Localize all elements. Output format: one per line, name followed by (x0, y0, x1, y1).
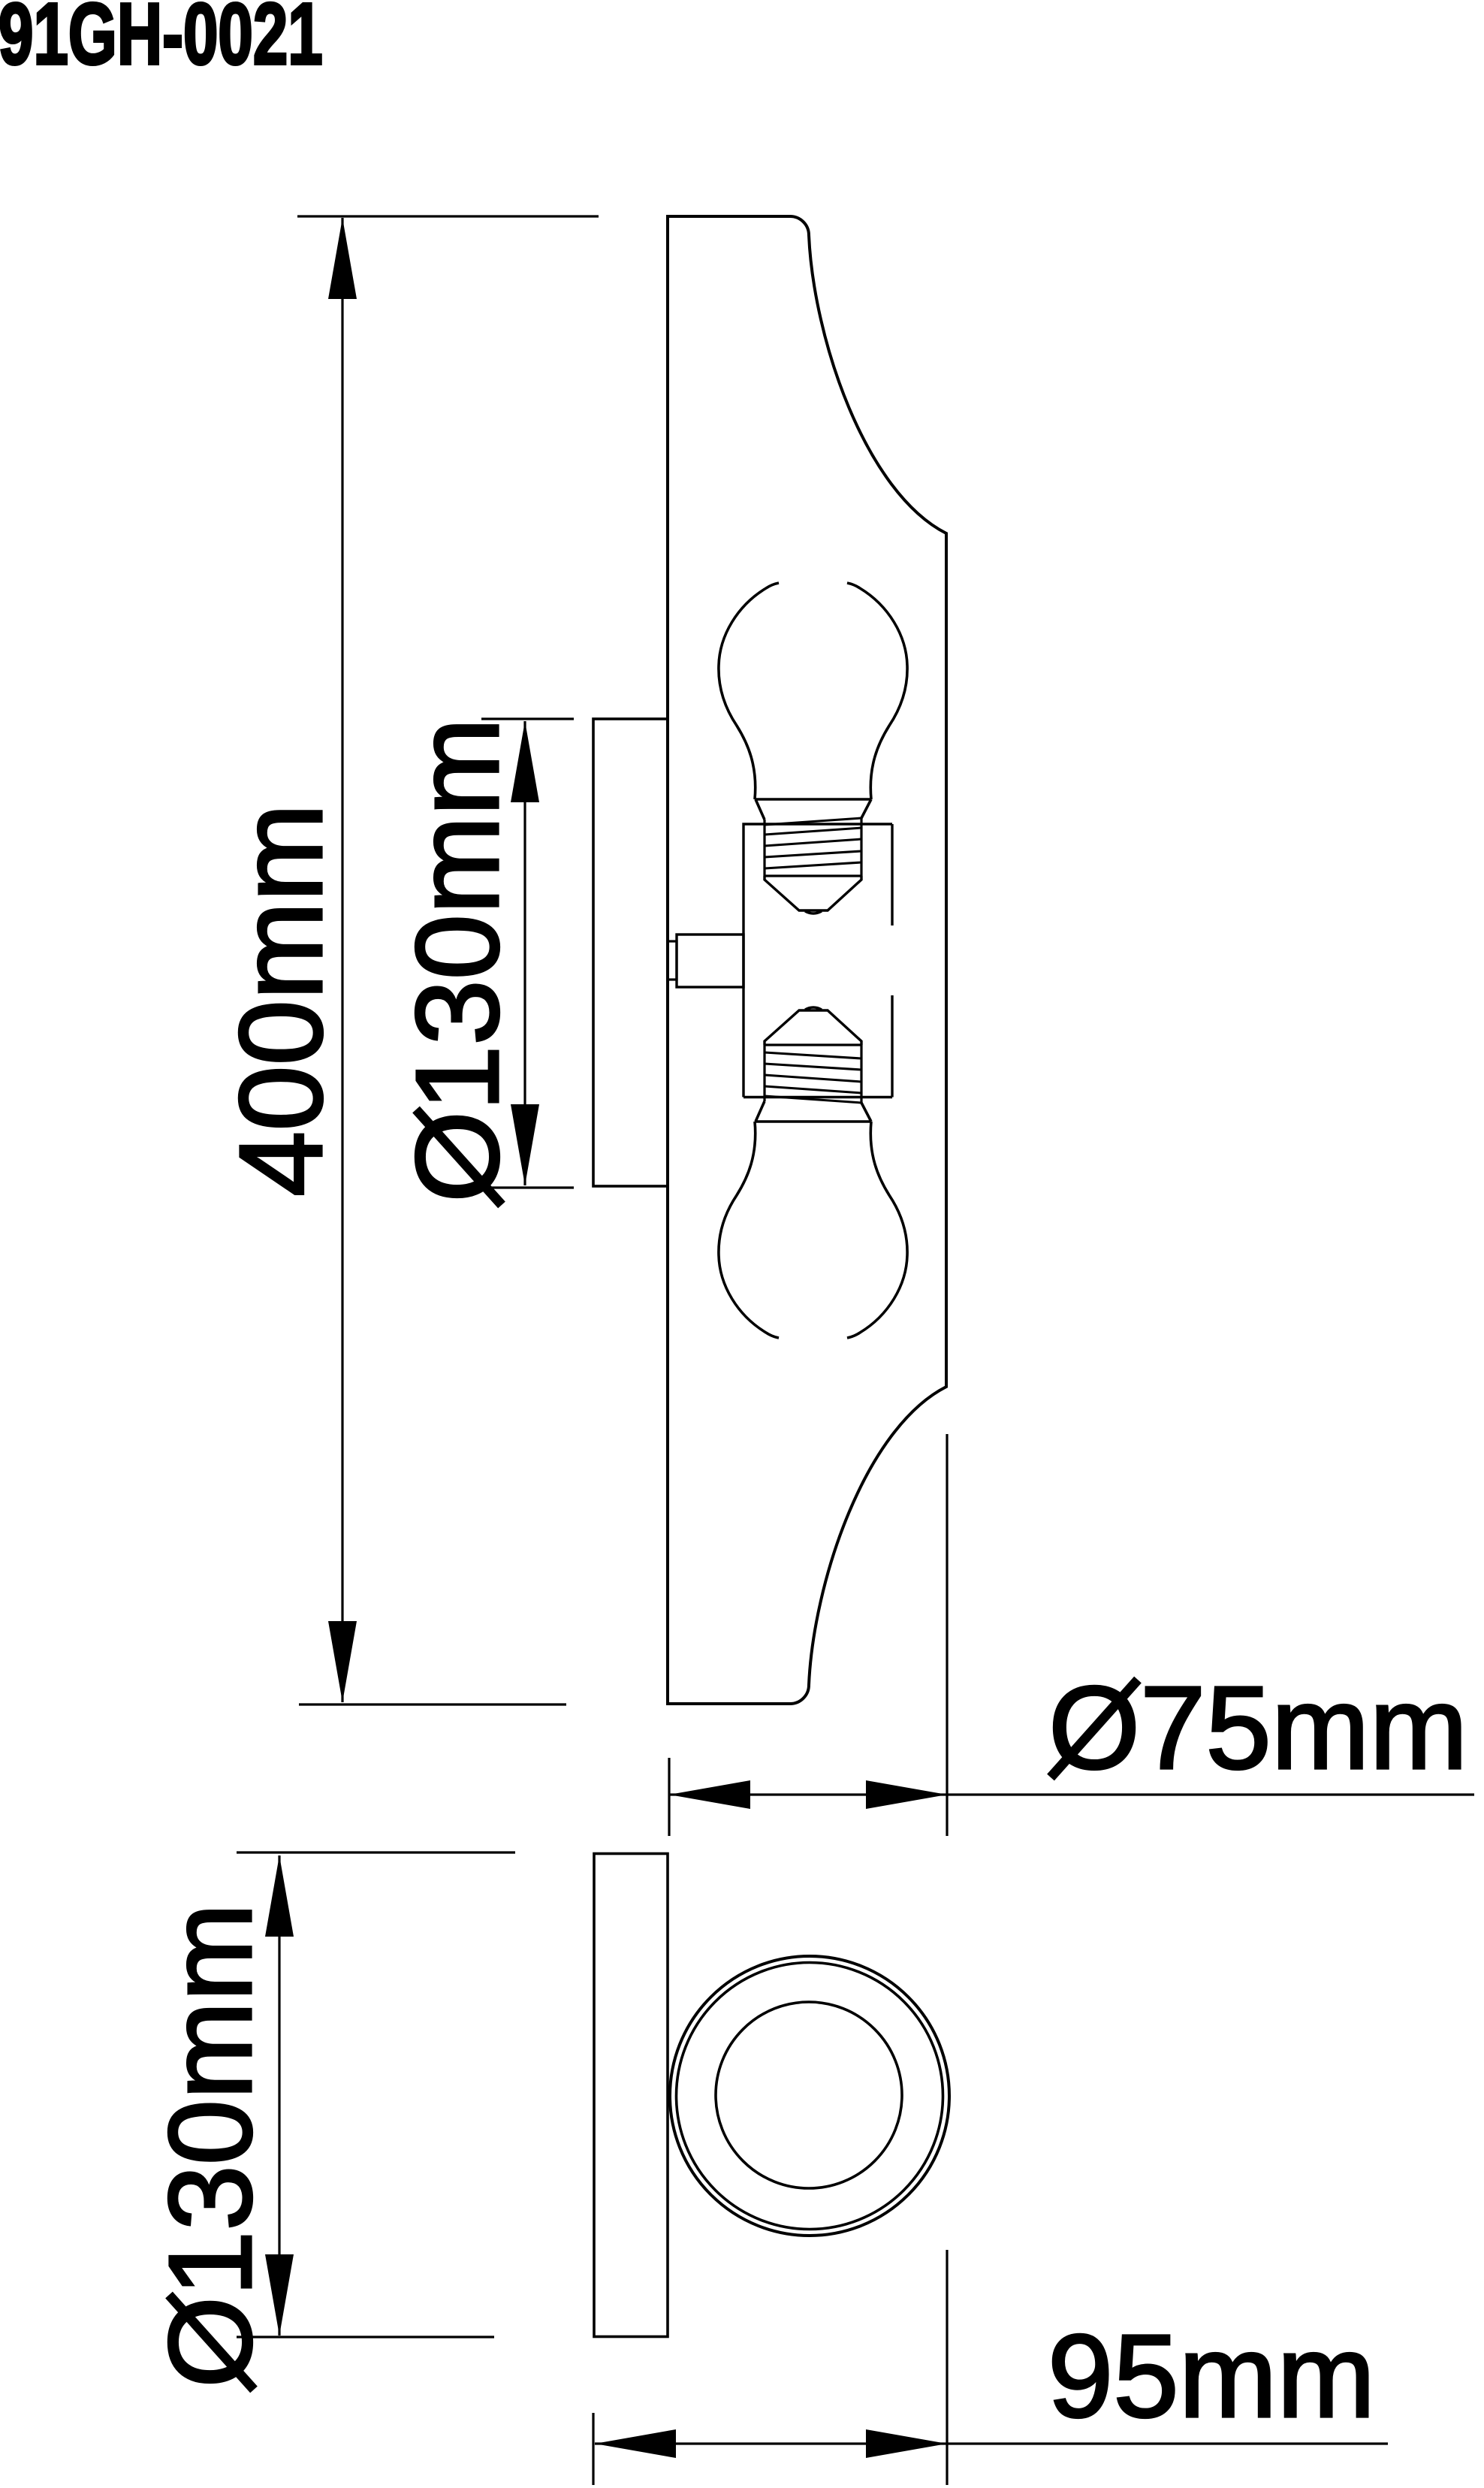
svg-text:O130mm: O130mm (392, 717, 523, 1203)
svg-text:91GH-0021: 91GH-0021 (0, 0, 323, 83)
svg-text:95mm: 95mm (1048, 2311, 1375, 2442)
svg-text:O130mm: O130mm (145, 1903, 276, 2388)
svg-text:O75mm: O75mm (1048, 1662, 1467, 1794)
svg-text:400mm: 400mm (216, 803, 347, 1197)
